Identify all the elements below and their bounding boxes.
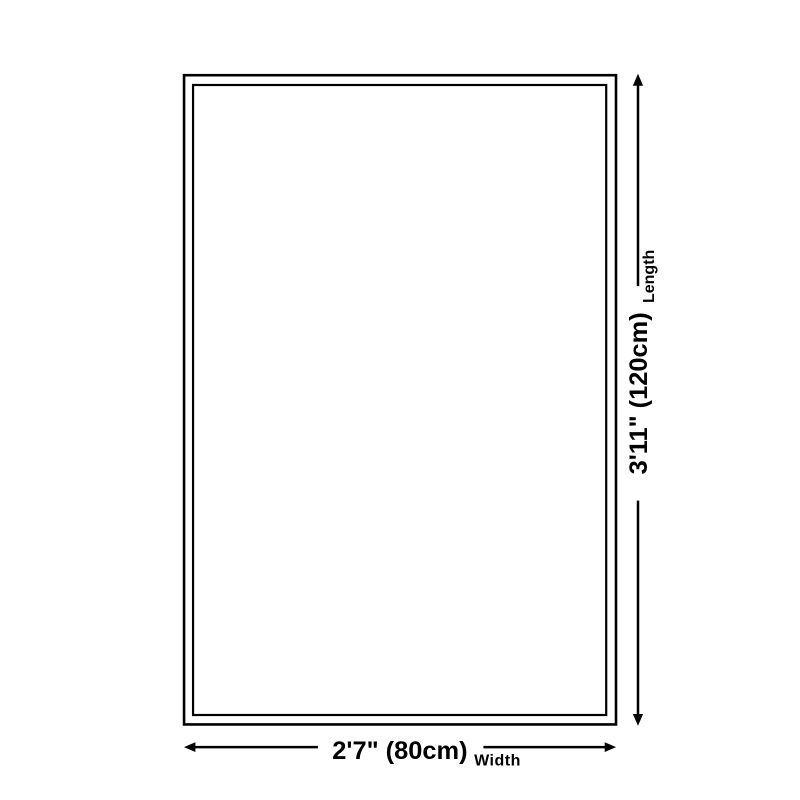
svg-text:Length: Length (641, 250, 658, 303)
svg-text:3'11" (120cm): 3'11" (120cm) (625, 312, 653, 474)
svg-text:2'7" (80cm): 2'7" (80cm) (332, 737, 467, 765)
svg-text:Width: Width (474, 753, 521, 770)
